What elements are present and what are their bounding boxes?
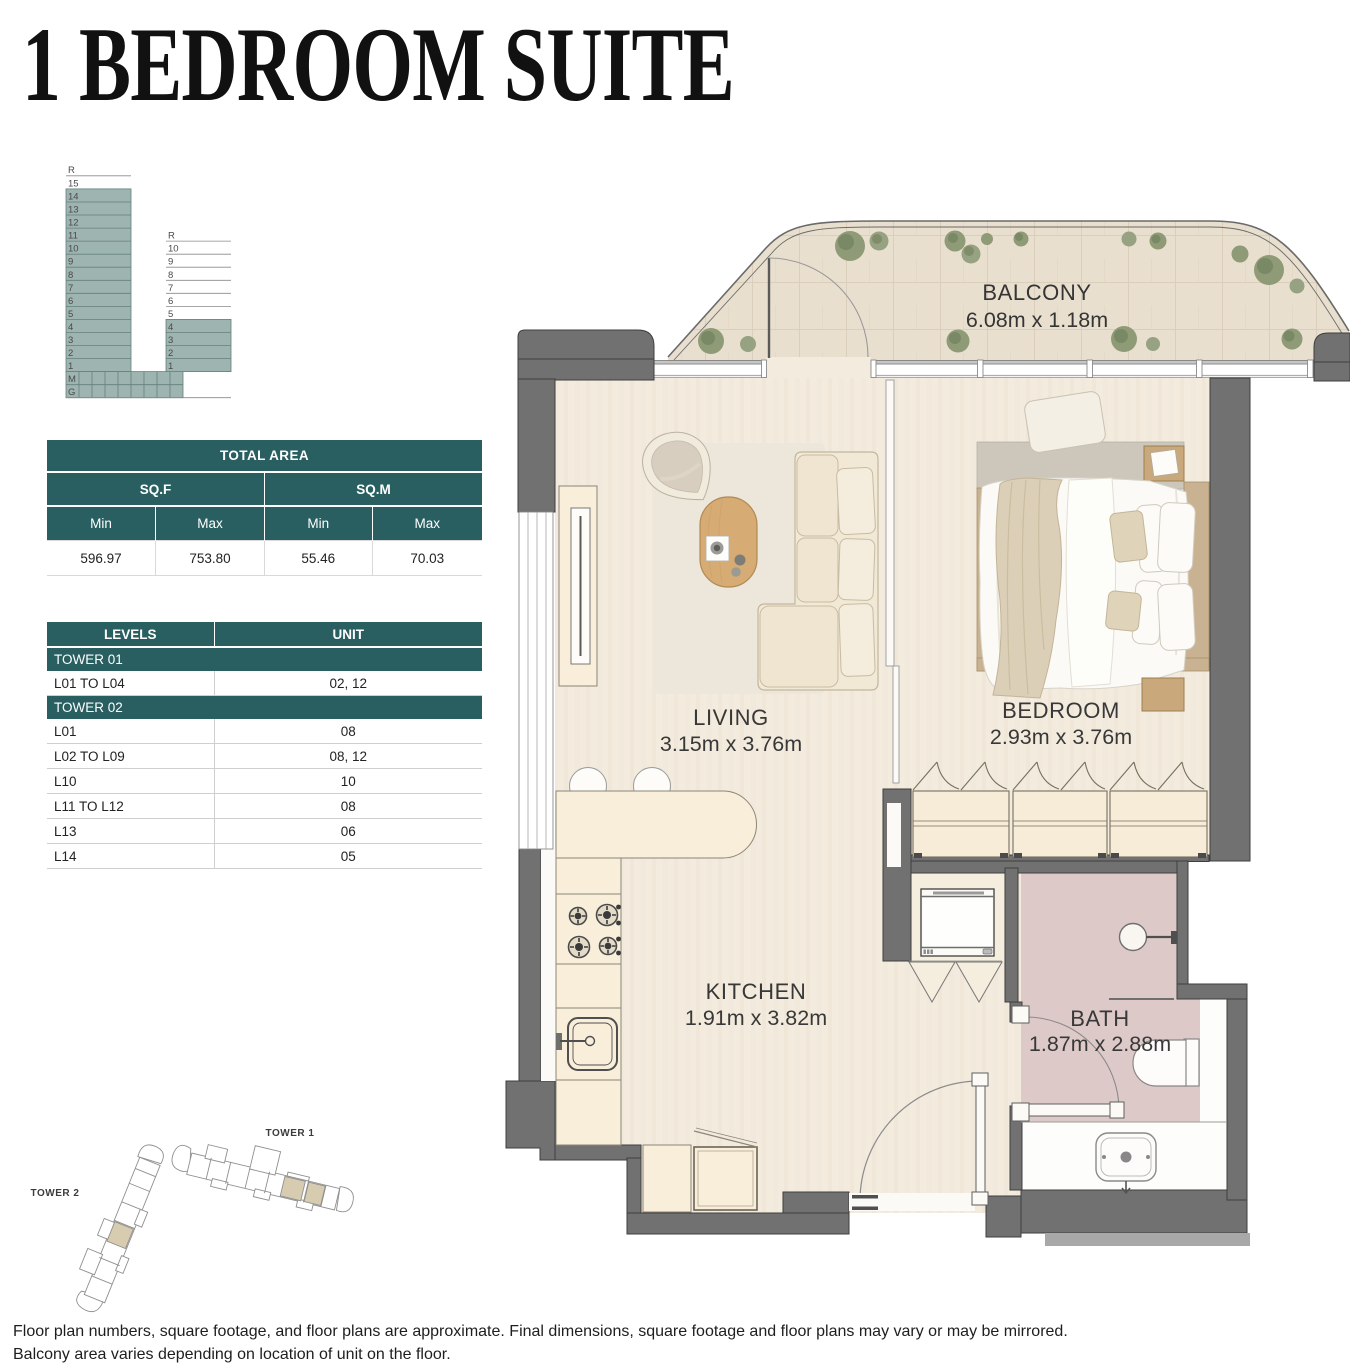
svg-text:BALCONY: BALCONY	[982, 280, 1091, 305]
svg-text:1.91m x 3.82m: 1.91m x 3.82m	[685, 1006, 827, 1030]
svg-text:BEDROOM: BEDROOM	[1002, 698, 1120, 723]
svg-text:3.15m x 3.76m: 3.15m x 3.76m	[660, 732, 802, 756]
svg-text:6.08m x 1.18m: 6.08m x 1.18m	[966, 308, 1108, 332]
svg-text:LIVING: LIVING	[693, 705, 769, 730]
svg-text:1.87m x 2.88m: 1.87m x 2.88m	[1029, 1032, 1171, 1056]
svg-text:BATH: BATH	[1070, 1006, 1129, 1031]
svg-text:2.93m x 3.76m: 2.93m x 3.76m	[990, 725, 1132, 749]
svg-text:KITCHEN: KITCHEN	[706, 979, 807, 1004]
